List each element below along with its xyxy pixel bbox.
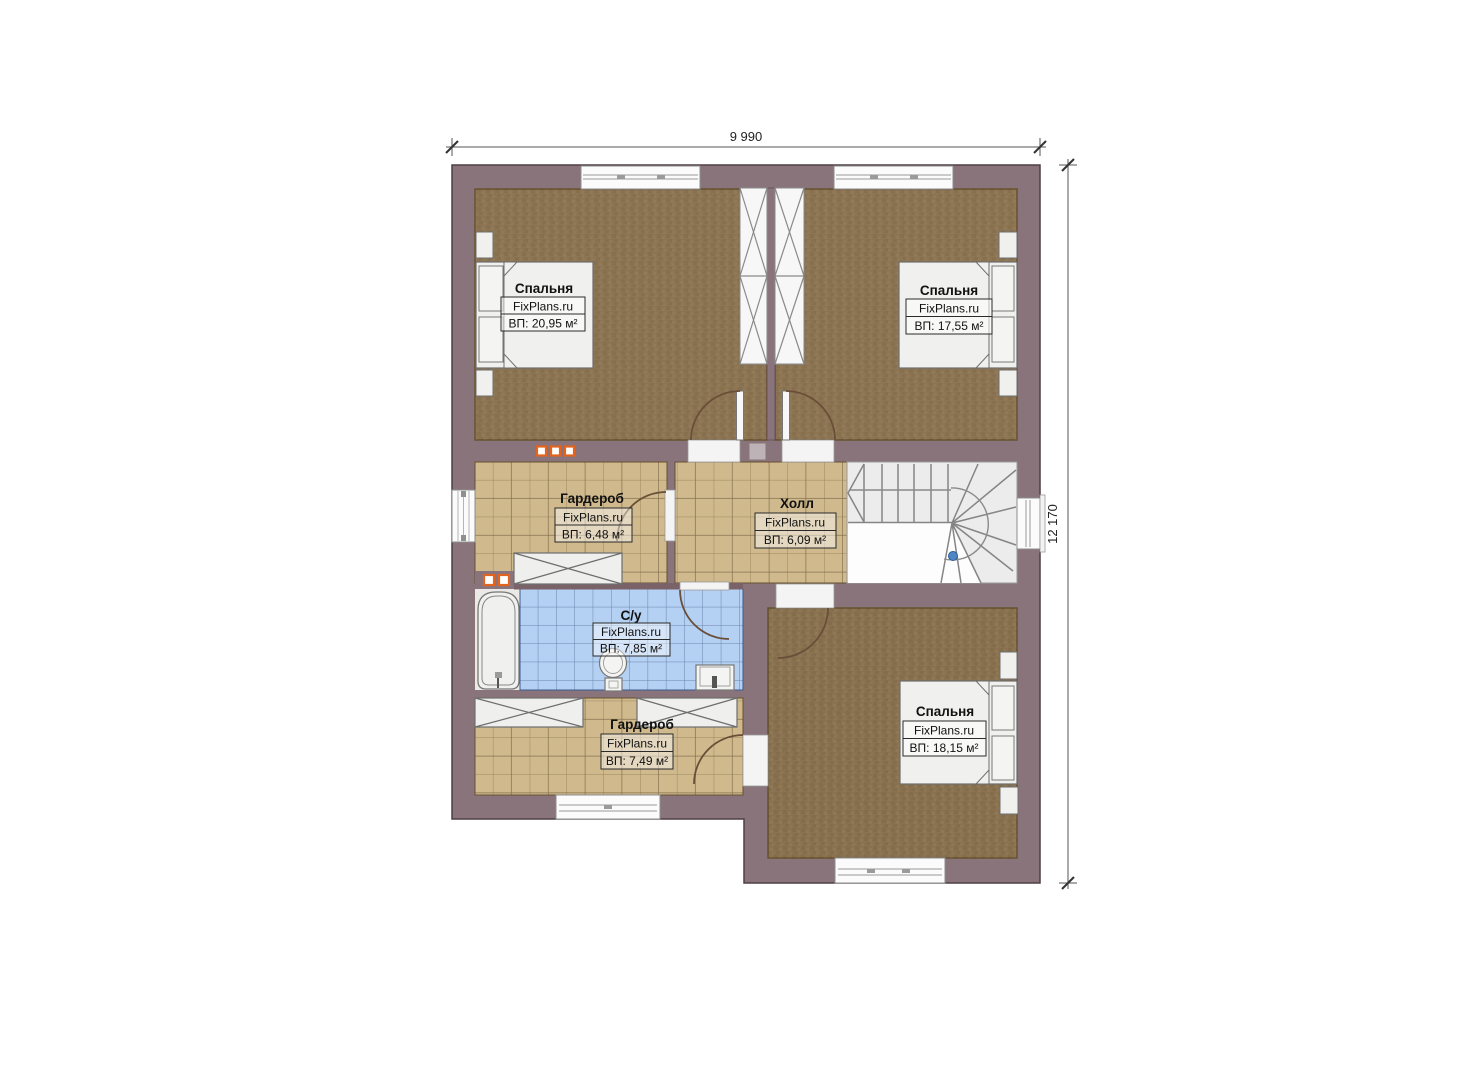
svg-text:С/у: С/у (620, 608, 642, 623)
svg-text:FixPlans.ru: FixPlans.ru (765, 516, 825, 530)
svg-text:FixPlans.ru: FixPlans.ru (513, 300, 573, 314)
svg-text:FixPlans.ru: FixPlans.ru (919, 302, 979, 316)
svg-text:Холл: Холл (780, 496, 814, 511)
svg-text:ВП: 7,85 м²: ВП: 7,85 м² (600, 642, 662, 656)
svg-text:12 170: 12 170 (1045, 504, 1060, 544)
svg-text:ВП: 18,15 м²: ВП: 18,15 м² (910, 741, 979, 755)
svg-text:Гардероб: Гардероб (610, 717, 674, 732)
svg-text:ВП: 7,49 м²: ВП: 7,49 м² (606, 754, 668, 768)
svg-text:Спальня: Спальня (515, 281, 573, 296)
svg-text:ВП: 17,55 м²: ВП: 17,55 м² (915, 319, 984, 333)
svg-text:ВП: 6,09 м²: ВП: 6,09 м² (764, 533, 826, 547)
svg-text:ВП: 6,48 м²: ВП: 6,48 м² (562, 528, 624, 542)
svg-text:Спальня: Спальня (920, 283, 978, 298)
svg-text:Спальня: Спальня (916, 704, 974, 719)
svg-text:FixPlans.ru: FixPlans.ru (607, 737, 667, 751)
svg-text:FixPlans.ru: FixPlans.ru (601, 625, 661, 639)
svg-text:FixPlans.ru: FixPlans.ru (914, 724, 974, 738)
svg-text:Гардероб: Гардероб (560, 491, 624, 506)
svg-text:FixPlans.ru: FixPlans.ru (563, 511, 623, 525)
svg-text:ВП: 20,95 м²: ВП: 20,95 м² (509, 317, 578, 331)
svg-text:9 990: 9 990 (730, 129, 763, 144)
